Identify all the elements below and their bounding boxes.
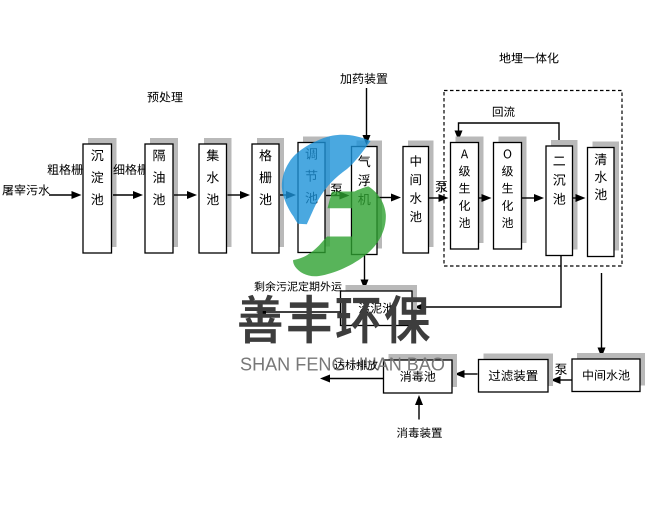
- svg-text:SHAN FENG HUAN BAO: SHAN FENG HUAN BAO: [240, 355, 445, 375]
